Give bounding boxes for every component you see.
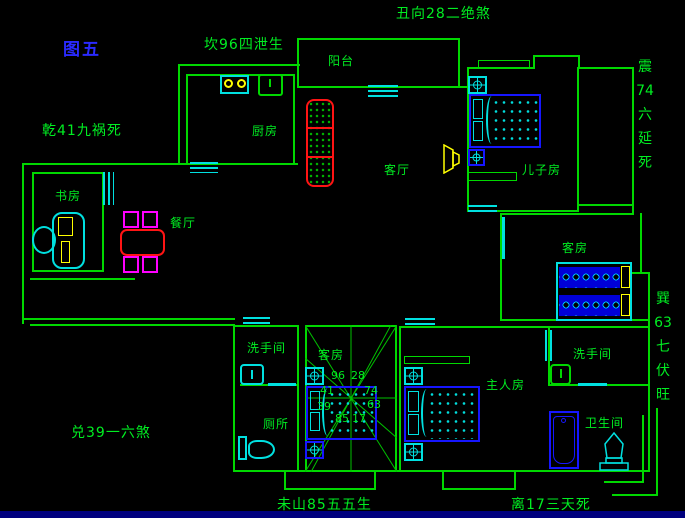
room-label-sons-room: 儿子房 [522, 161, 561, 178]
wall-segment [642, 415, 644, 483]
room-label-balcony: 阳台 [328, 52, 354, 69]
window [103, 172, 114, 205]
wall-segment [578, 67, 634, 69]
plant-divider [307, 156, 333, 158]
room-label-master: 主人房 [486, 376, 525, 393]
plant-divider [307, 127, 333, 129]
bed [559, 267, 620, 288]
step-outline [514, 472, 516, 490]
annotation-southeast-char: 七 [648, 335, 678, 359]
annotation-east-char: 延 [630, 127, 660, 151]
faucet [560, 369, 562, 378]
shelf [478, 60, 530, 68]
room-label-kitchen: 厨房 [252, 122, 278, 139]
bathtub-drain [561, 418, 566, 423]
annotation-east-char: 死 [630, 151, 660, 175]
faucet [251, 370, 253, 379]
compass-number-ne: 28 [351, 369, 365, 382]
taskbar-edge [0, 511, 685, 518]
wall-segment [458, 38, 460, 88]
annotation-northeast: 丑向28二绝煞 [396, 3, 491, 23]
wall-segment [612, 494, 658, 496]
room-label-study: 书房 [55, 187, 81, 204]
room-label-dining: 餐厅 [170, 214, 196, 231]
annotation-southeast: 巽 63 七 伏 旺 [648, 287, 678, 407]
annotation-southeast-char: 旺 [648, 383, 678, 407]
wall-segment [604, 481, 644, 483]
wall-segment [577, 67, 579, 212]
annotation-northwest: 乾41九祸死 [42, 120, 122, 140]
annotation-southeast-char: 巽 [648, 287, 678, 311]
compass-number-wnw: 41 [320, 384, 334, 397]
cad-canvas: 阳台 厨房 客厅 儿子房 书房 餐厅 客房 洗手间 厕所 客房 主人房 洗手间 … [0, 0, 685, 518]
window [468, 205, 497, 215]
nightstand [468, 149, 485, 166]
annotation-southeast-char: 63 [648, 311, 678, 335]
wall-segment [30, 278, 135, 280]
annotation-north: 坎96四泄生 [204, 34, 284, 54]
chair [32, 226, 56, 254]
pillow [621, 294, 630, 316]
figure-title: 图五 [63, 35, 101, 60]
annotation-east: 震 74 六 延 死 [630, 55, 660, 175]
door [502, 217, 505, 259]
step-outline [284, 488, 376, 490]
stove-burner [237, 79, 246, 88]
annotation-east-char: 74 [630, 79, 660, 103]
compass-number-w: 39 [317, 400, 331, 413]
room-label-toilet: 厕所 [263, 415, 289, 432]
toilet-tank [238, 436, 247, 460]
toilet-icon [597, 432, 631, 472]
window [405, 318, 435, 327]
tv-icon [443, 144, 461, 174]
wall-segment [656, 408, 658, 496]
blanket-pattern [492, 98, 538, 144]
wall-segment [500, 213, 632, 215]
lamp-icon [470, 78, 485, 92]
wall-segment [577, 204, 634, 206]
pillow [473, 99, 483, 119]
annotation-west: 兑39一六煞 [71, 422, 151, 442]
window [545, 330, 553, 361]
nightstand [404, 443, 423, 461]
nightstand [404, 367, 423, 385]
step-outline [442, 488, 516, 490]
wall-segment [297, 38, 299, 88]
room-label-washroom-left: 洗手间 [247, 339, 286, 356]
room-label-guest-center: 客房 [318, 346, 344, 363]
pillow [408, 391, 419, 412]
pillow [621, 266, 630, 288]
window [243, 317, 270, 327]
shelf [404, 356, 470, 364]
compass-number-sw: 85 [335, 412, 349, 425]
compass-number-ene: 74 [364, 384, 378, 397]
lamp-icon [307, 369, 322, 383]
annotation-east-char: 震 [630, 55, 660, 79]
computer-tower [61, 241, 70, 263]
nightstand [468, 76, 487, 94]
lamp-icon [406, 369, 421, 383]
lamp-icon [406, 445, 421, 459]
bed [559, 295, 620, 316]
room-label-living: 客厅 [384, 161, 410, 178]
stove-burner [224, 79, 233, 88]
wall-segment [22, 163, 24, 324]
window [368, 85, 398, 97]
potted-plant [306, 99, 334, 187]
room-label-guest-right: 客房 [562, 239, 588, 256]
room-label-washroom-right: 洗手间 [573, 345, 612, 362]
wall-segment [533, 55, 580, 57]
wall-segment [30, 324, 235, 326]
room-label-bathroom: 卫生间 [585, 414, 624, 431]
wall-segment [22, 163, 298, 165]
door [268, 383, 296, 386]
door [578, 383, 607, 386]
wall-segment [22, 318, 235, 320]
wall-segment [399, 326, 648, 328]
bathtub-inner [553, 416, 575, 464]
dining-chair [123, 211, 139, 228]
compass-number-se: 17 [352, 412, 366, 425]
faucet [269, 79, 271, 87]
compass-number-e: 63 [367, 398, 381, 411]
dining-chair [123, 256, 139, 273]
dining-table [120, 229, 165, 256]
toilet-bowl [248, 440, 275, 459]
dining-chair [142, 256, 158, 273]
wall-segment [297, 38, 460, 40]
window [190, 162, 218, 173]
nightstand [305, 441, 324, 459]
compass-number-nw: 96 [331, 369, 345, 382]
step-outline [374, 472, 376, 490]
wall-segment [640, 213, 642, 273]
pillow [408, 414, 419, 435]
annotation-southeast-char: 伏 [648, 359, 678, 383]
wall-segment [533, 55, 535, 69]
wall-segment [399, 326, 401, 472]
blanket-pattern [428, 390, 476, 439]
pillow [310, 412, 320, 431]
annotation-east-char: 六 [630, 103, 660, 127]
wall-segment [178, 64, 300, 66]
shelf [467, 172, 517, 181]
computer-monitor [58, 217, 73, 236]
pillow [473, 121, 483, 141]
lamp-icon [470, 151, 483, 164]
wall-segment [297, 325, 299, 472]
wall-segment [233, 325, 235, 472]
wall-segment [178, 64, 180, 165]
lamp-icon [307, 443, 322, 457]
dining-chair [142, 211, 158, 228]
nightstand [305, 367, 324, 385]
